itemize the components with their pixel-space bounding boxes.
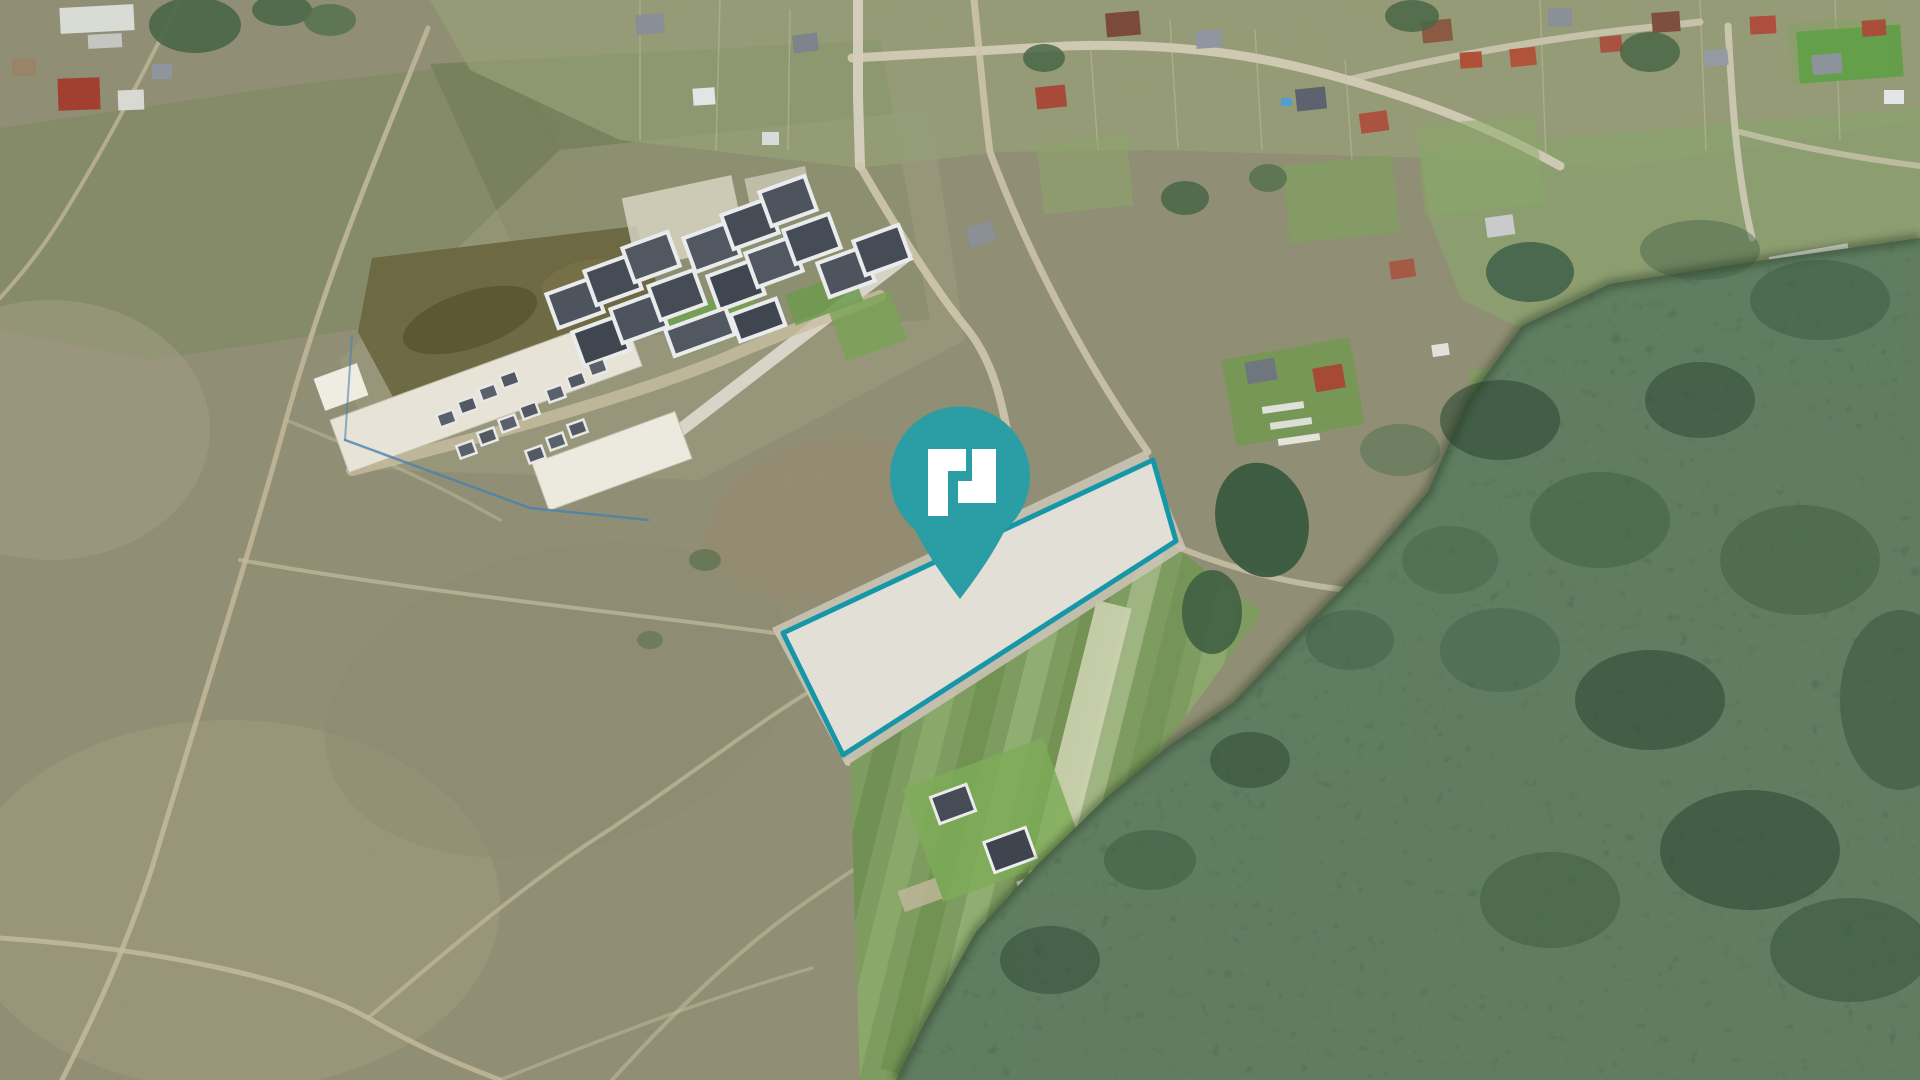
canopy-texture — [1720, 505, 1880, 615]
canopy-texture — [1360, 424, 1440, 476]
house — [1389, 258, 1416, 279]
canopy-texture — [1660, 790, 1840, 910]
house — [1861, 19, 1886, 37]
building — [59, 4, 134, 34]
house — [762, 132, 779, 145]
map-viewport[interactable] — [0, 0, 1920, 1080]
tree-cluster — [1182, 570, 1242, 654]
tree-cluster — [1385, 0, 1439, 32]
yard — [1037, 135, 1134, 214]
house — [1750, 15, 1777, 34]
house — [792, 32, 819, 53]
house — [1312, 364, 1346, 393]
canopy-texture — [1104, 830, 1196, 890]
house — [1548, 8, 1572, 26]
building — [152, 64, 172, 79]
house — [1035, 84, 1067, 109]
tree-cluster — [637, 631, 663, 649]
house — [1431, 343, 1450, 357]
tree-cluster — [304, 4, 356, 36]
house — [1811, 53, 1843, 76]
tree-cluster — [1620, 32, 1680, 72]
canopy-texture — [1210, 732, 1290, 788]
tree-cluster — [1023, 44, 1065, 72]
tree-cluster — [1161, 181, 1209, 215]
house — [1485, 214, 1516, 238]
tree-cluster — [1486, 242, 1574, 302]
yard — [1282, 154, 1400, 243]
house — [1459, 51, 1482, 68]
canopy-texture — [1440, 608, 1560, 692]
tree-cluster — [689, 549, 721, 571]
house — [1509, 47, 1537, 68]
canopy-texture — [1530, 472, 1670, 568]
house — [1884, 90, 1904, 104]
canopy-texture — [1575, 650, 1725, 750]
house — [1295, 86, 1327, 111]
house — [1703, 49, 1729, 67]
canopy-texture — [1306, 610, 1394, 670]
building — [88, 33, 123, 49]
building — [118, 90, 145, 111]
map-canvas[interactable] — [0, 0, 1920, 1080]
canopy-texture — [1750, 260, 1890, 340]
house — [1281, 98, 1292, 106]
house — [1195, 29, 1222, 49]
canopy-texture — [1402, 526, 1498, 594]
house — [635, 13, 665, 36]
house — [1105, 11, 1141, 38]
canopy-texture — [1000, 926, 1100, 994]
house — [1651, 11, 1680, 33]
yard — [1416, 114, 1545, 216]
building — [12, 58, 36, 76]
yard — [1796, 24, 1903, 83]
tree-cluster — [1249, 164, 1287, 192]
house — [692, 87, 715, 105]
canopy-texture — [1480, 852, 1620, 948]
house — [1359, 110, 1390, 134]
road — [858, 0, 860, 166]
house — [1599, 35, 1622, 53]
building — [57, 77, 100, 110]
canopy-texture — [1645, 362, 1755, 438]
